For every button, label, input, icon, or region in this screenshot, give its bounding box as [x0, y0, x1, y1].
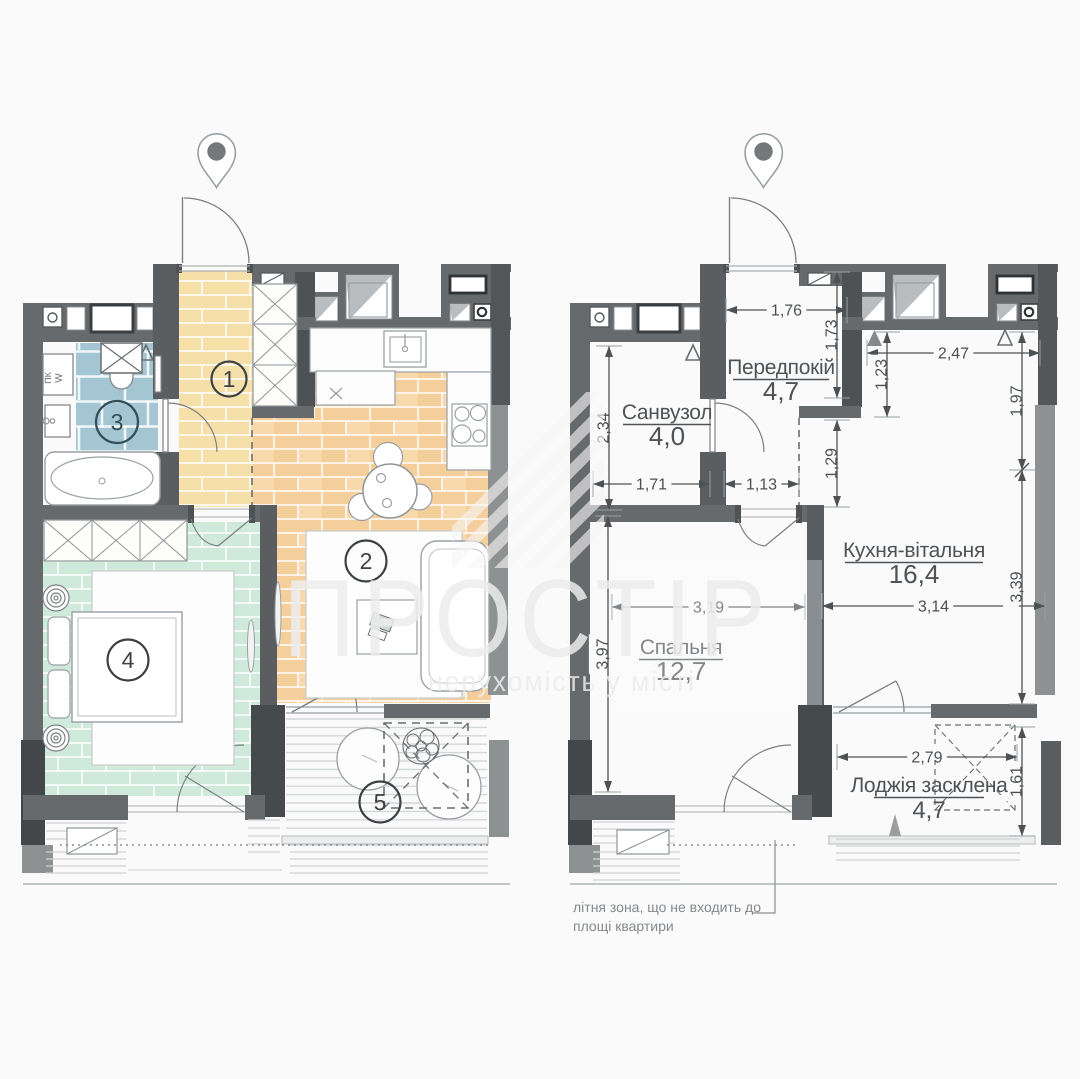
- svg-text:1,61: 1,61: [1009, 766, 1026, 797]
- svg-text:3: 3: [111, 409, 124, 435]
- svg-text:Лоджія засклена: Лоджія засклена: [850, 774, 1008, 797]
- svg-text:1,71: 1,71: [636, 477, 667, 494]
- svg-text:4,7: 4,7: [912, 797, 945, 824]
- svg-text:1,97: 1,97: [1009, 385, 1026, 416]
- svg-text:1,73: 1,73: [824, 319, 841, 350]
- svg-text:4,7: 4,7: [763, 376, 799, 406]
- svg-text:3,39: 3,39: [1009, 571, 1026, 602]
- svg-text:ПРОСТІР: ПРОСТІР: [283, 557, 773, 680]
- svg-text:4,0: 4,0: [649, 421, 685, 451]
- svg-text:ПК: ПК: [43, 371, 53, 383]
- svg-text:W: W: [54, 373, 65, 383]
- svg-text:1,76: 1,76: [771, 303, 802, 320]
- svg-text:нерухомість у місті: нерухомість у місті: [428, 666, 696, 697]
- svg-text:1,13: 1,13: [746, 477, 777, 494]
- svg-text:5: 5: [374, 789, 387, 815]
- svg-text:1,23: 1,23: [874, 359, 891, 390]
- svg-text:1: 1: [223, 366, 236, 392]
- svg-text:літня зона, що не входить до: літня зона, що не входить до: [573, 899, 761, 915]
- svg-text:1,29: 1,29: [824, 448, 841, 479]
- svg-text:площі квартири: площі квартири: [573, 918, 674, 934]
- svg-text:16,4: 16,4: [889, 559, 940, 589]
- svg-text:2,47: 2,47: [938, 346, 969, 363]
- svg-text:4: 4: [122, 647, 135, 673]
- svg-text:3,14: 3,14: [918, 599, 949, 616]
- svg-text:2,79: 2,79: [911, 750, 942, 767]
